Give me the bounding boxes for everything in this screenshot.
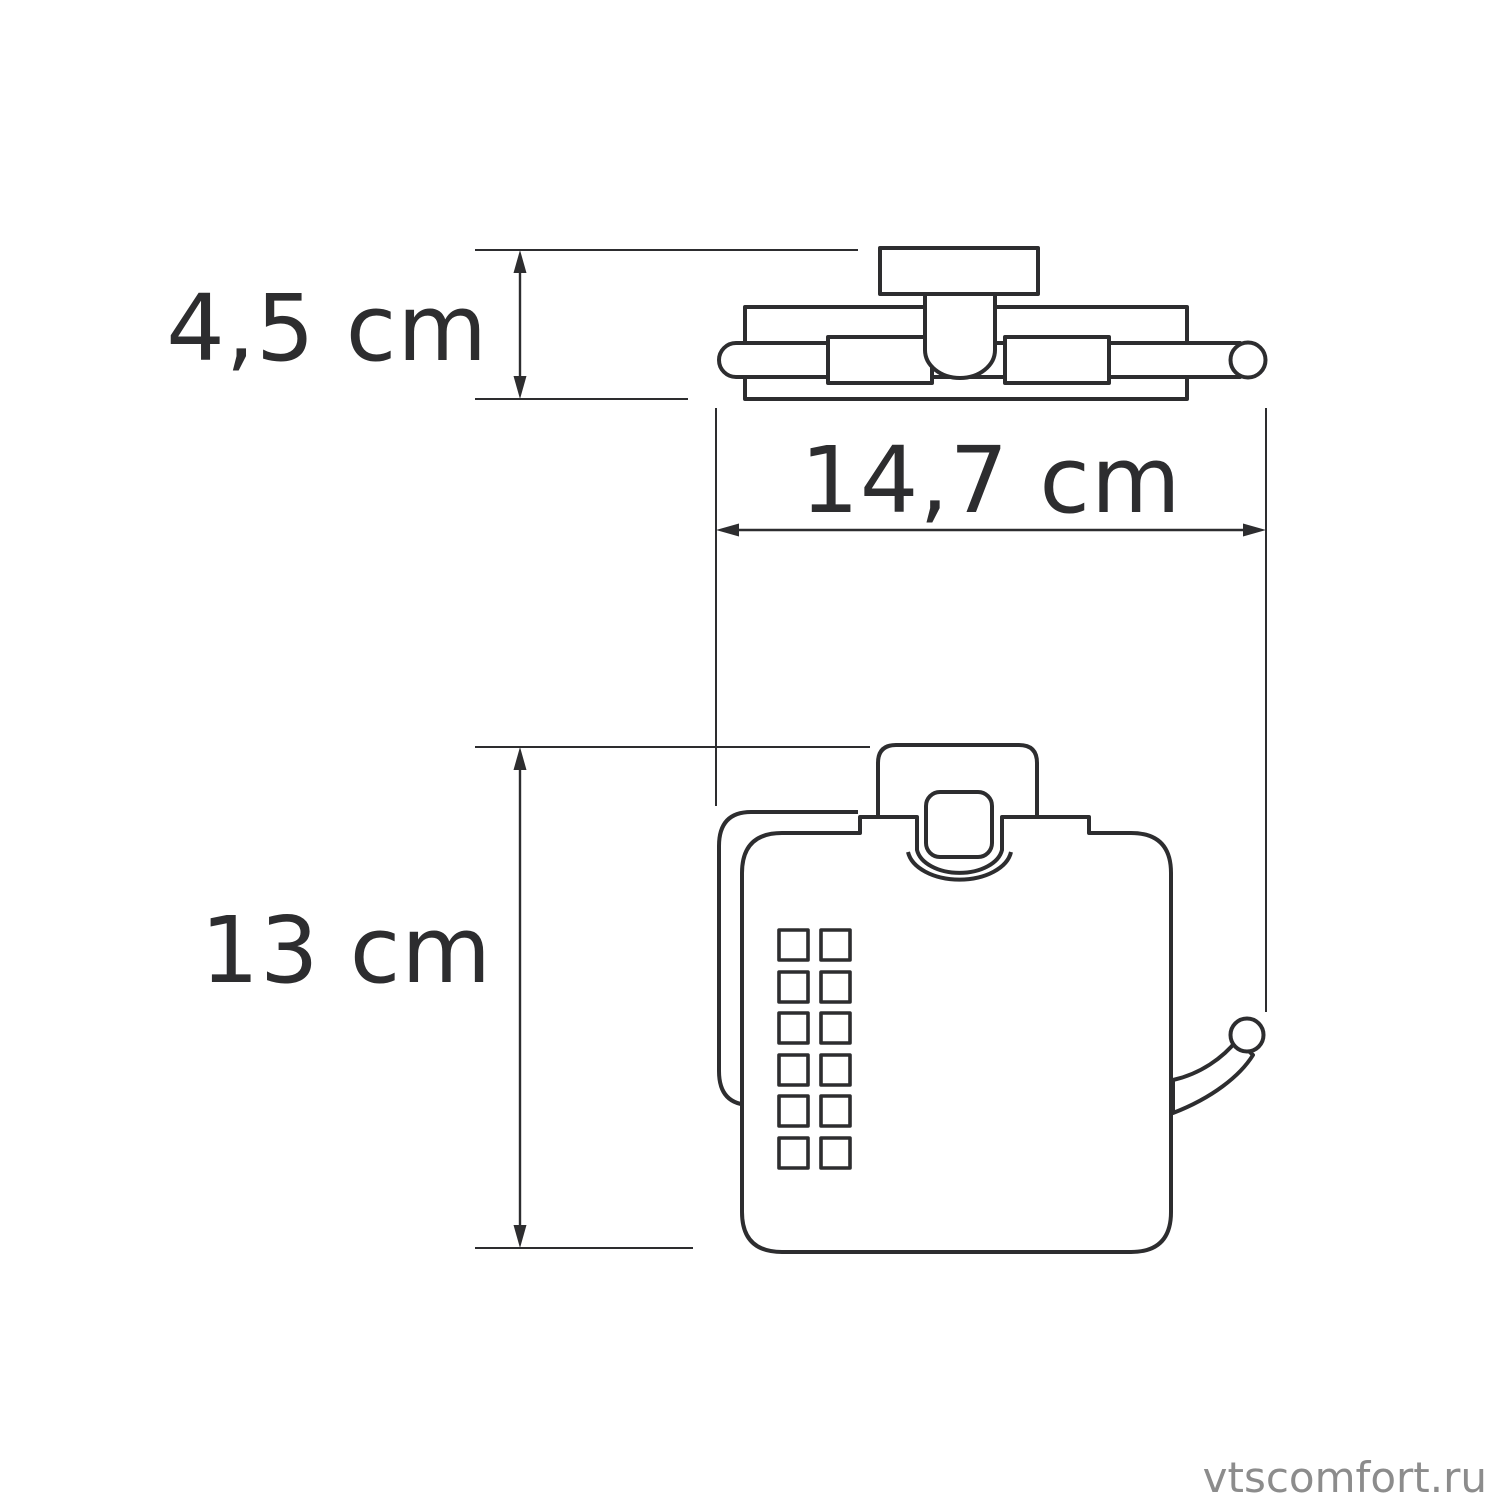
latch-button (926, 792, 992, 857)
dimension-width-label: 14,7 cm (800, 427, 1181, 534)
spindle-ball (1231, 1019, 1264, 1052)
arrowhead-down-icon (514, 1225, 527, 1248)
dimension-drawing: 4,5 cm 14,7 cm 13 cm (0, 0, 1500, 1500)
top-view-drawing (719, 248, 1266, 399)
bar-sleeve-right (1005, 337, 1109, 383)
arrowhead-left-icon (716, 524, 739, 537)
watermark: vtscomfort.ru (1203, 1453, 1487, 1500)
diagram-canvas: 4,5 cm 14,7 cm 13 cm (0, 0, 1500, 1500)
roll-bar-end-cap (1231, 343, 1266, 378)
arrowhead-right-icon (1243, 524, 1266, 537)
arrowhead-up-icon (514, 250, 527, 273)
bar-sleeve-left (828, 337, 932, 383)
arrowhead-down-icon (514, 376, 527, 399)
mount-knob-top-view (880, 248, 1038, 294)
dimension-height-label: 13 cm (200, 897, 492, 1004)
mount-stem-top-view (925, 294, 995, 378)
dimension-depth-label: 4,5 cm (166, 275, 488, 382)
front-view-drawing (719, 745, 1264, 1252)
arrowhead-up-icon (514, 747, 527, 770)
